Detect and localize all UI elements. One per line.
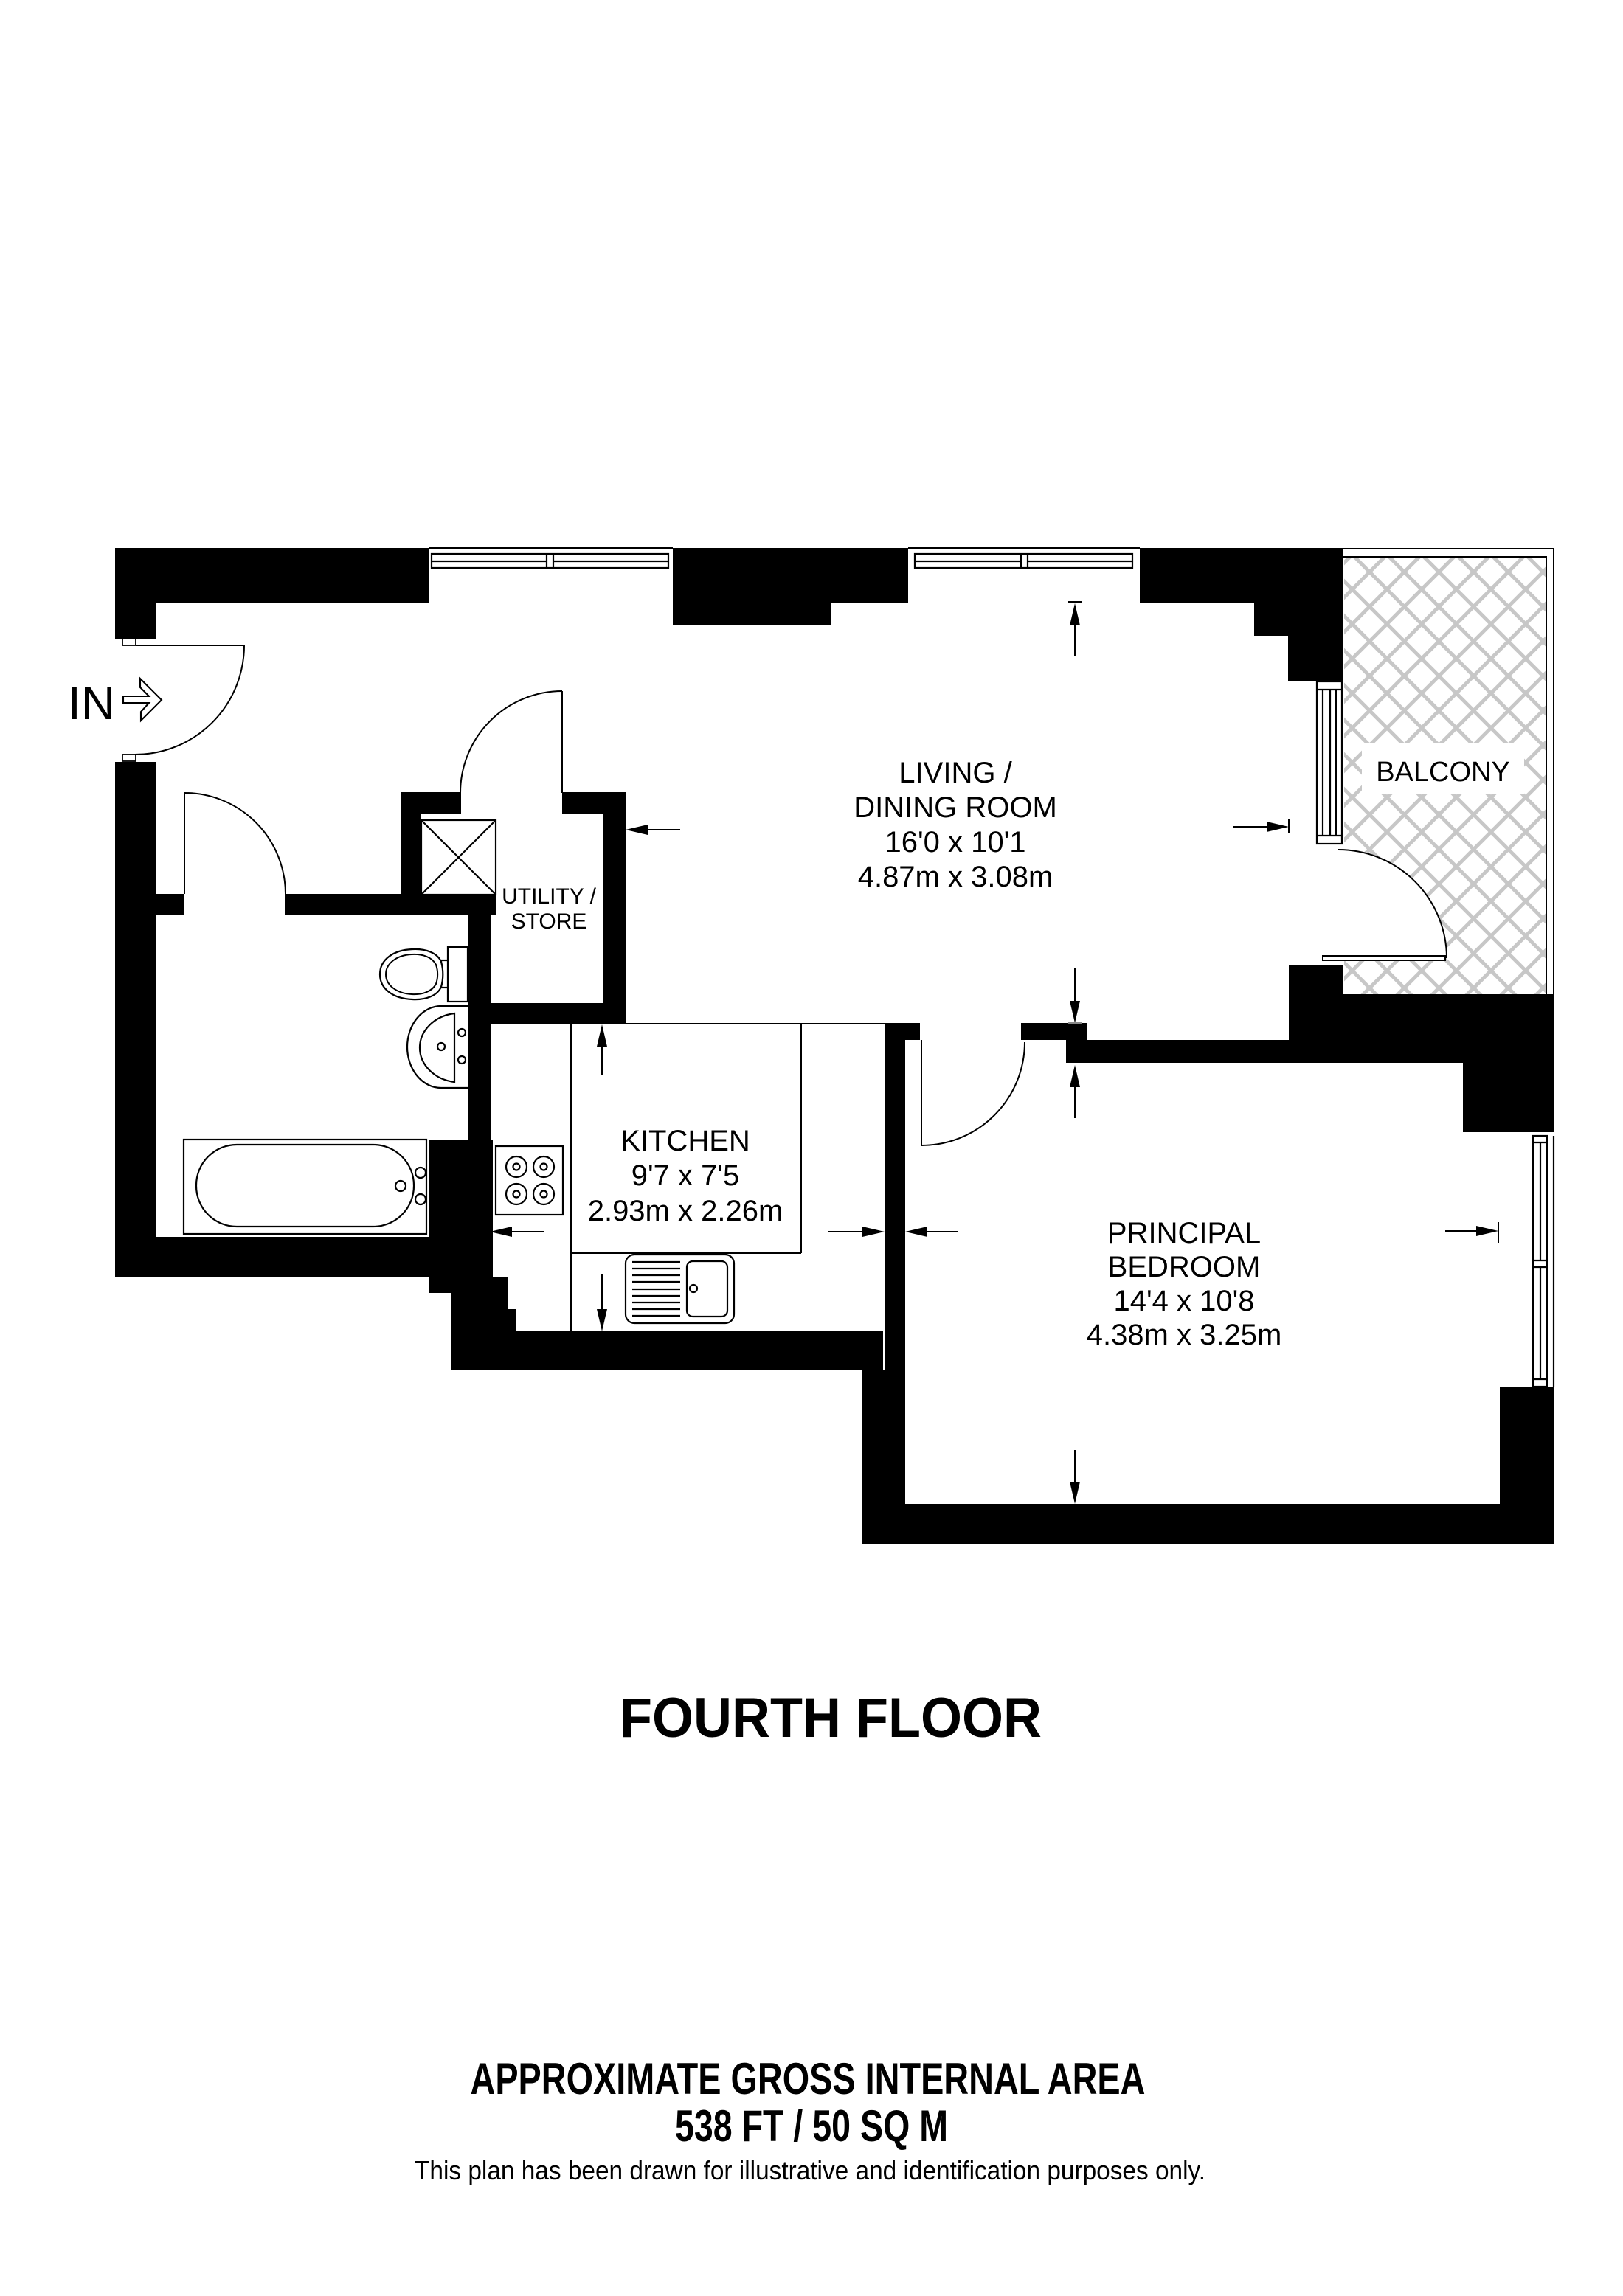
- svg-text:2.93m x 2.26m: 2.93m x 2.26m: [588, 1195, 783, 1227]
- svg-text:4.87m x 3.08m: 4.87m x 3.08m: [858, 861, 1053, 893]
- svg-text:APPROXIMATE GROSS INTERNAL ARE: APPROXIMATE GROSS INTERNAL AREA: [471, 2054, 1146, 2103]
- svg-text:DINING ROOM: DINING ROOM: [854, 791, 1057, 824]
- svg-text:PRINCIPAL: PRINCIPAL: [1107, 1217, 1261, 1249]
- svg-text:IN: IN: [68, 676, 115, 729]
- svg-text:KITCHEN: KITCHEN: [620, 1125, 750, 1157]
- svg-text:STORE: STORE: [511, 909, 587, 934]
- svg-text:BEDROOM: BEDROOM: [1108, 1251, 1261, 1283]
- svg-text:UTILITY /: UTILITY /: [502, 884, 596, 909]
- svg-text:16'0 x 10'1: 16'0 x 10'1: [885, 826, 1026, 859]
- svg-text:This plan has been drawn for i: This plan has been drawn for illustrativ…: [415, 2155, 1205, 2185]
- svg-text:FOURTH FLOOR: FOURTH FLOOR: [620, 1687, 1042, 1749]
- svg-text:LIVING /: LIVING /: [899, 757, 1012, 789]
- svg-text:14'4 x 10'8: 14'4 x 10'8: [1114, 1285, 1255, 1317]
- svg-text:4.38m x 3.25m: 4.38m x 3.25m: [1087, 1319, 1282, 1351]
- svg-text:9'7 x 7'5: 9'7 x 7'5: [631, 1159, 739, 1192]
- svg-text:538 FT / 50 SQ M: 538 FT / 50 SQ M: [675, 2101, 948, 2151]
- svg-text:BALCONY: BALCONY: [1376, 757, 1510, 788]
